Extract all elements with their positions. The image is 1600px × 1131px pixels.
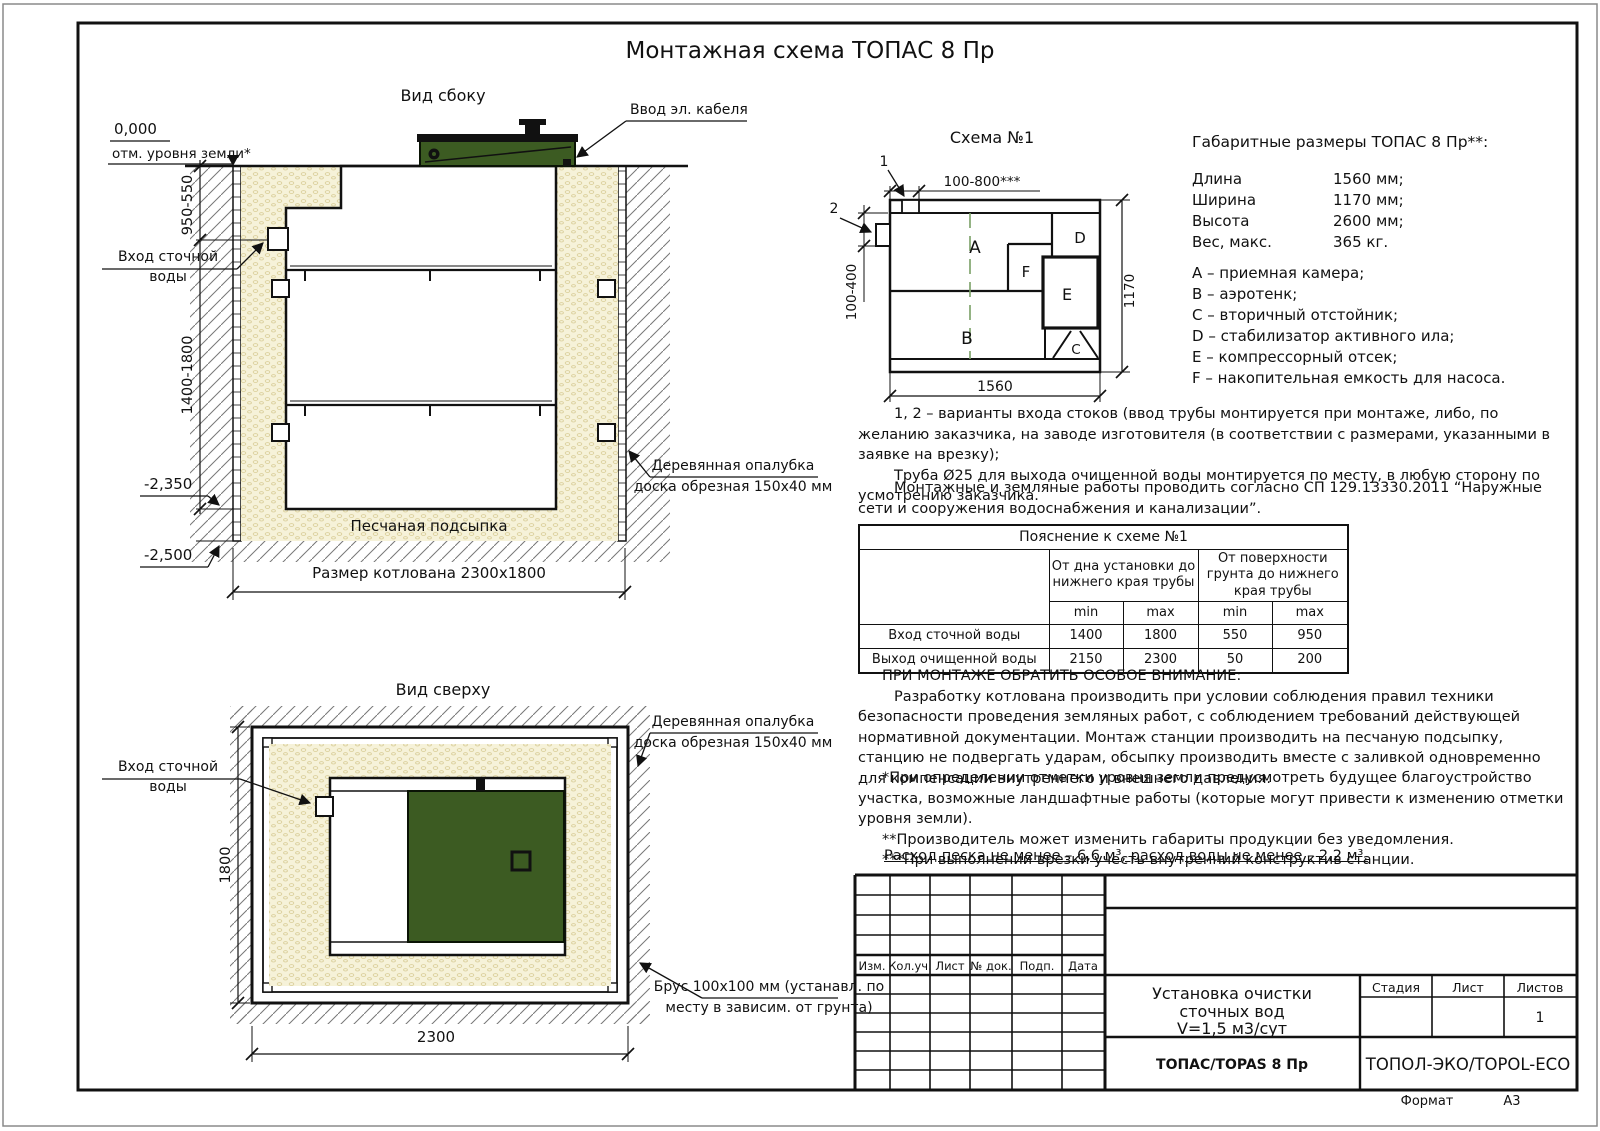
- title-block-text: Изм. Кол.уч. Лист № док. Подп. Дата Уста…: [858, 959, 1570, 1109]
- spec-value: 365 кг.: [1333, 233, 1388, 251]
- soil-hatch-left: [190, 166, 233, 562]
- explanation-table: Пояснение к схеме №1 От дна установки до…: [858, 524, 1349, 674]
- side-view-title: Вид сбоку: [400, 86, 485, 105]
- sheet-header: Лист: [1452, 980, 1484, 995]
- dim-1400-1800: 1400-1800: [180, 335, 196, 414]
- compartment-b-label: B: [961, 329, 973, 349]
- schema-title: Схема №1: [950, 128, 1034, 147]
- formwork-label-line1: Деревянная опалубка: [652, 714, 815, 730]
- drawing-sheet: Монтажная схема ТОПАС 8 Пр Вид сбоку: [0, 0, 1600, 1131]
- dim-1170: 1170: [1122, 274, 1138, 308]
- tank-body: [286, 166, 556, 509]
- wall-clip: [272, 280, 289, 297]
- dim-2300: 2300: [417, 1028, 455, 1046]
- formwork-label-line2: доска обрезная 150х40 мм: [634, 479, 833, 495]
- notes-sp: Монтажные и земляные работы проводить со…: [858, 478, 1552, 519]
- legend-item: F – накопительная емкость для насоса.: [1192, 369, 1505, 387]
- inlet-pipe-stub: [268, 228, 288, 250]
- dim-1560: 1560: [977, 379, 1013, 395]
- attention-title: ПРИ МОНТАЖЕ ОБРАТИТЬ ОСОБОЕ ВНИМАНИЕ:: [858, 666, 1558, 687]
- wall-clip: [598, 280, 615, 297]
- soil-hatch-bottom: [230, 1003, 650, 1024]
- specs-title: Габаритные размеры ТОПАС 8 Пр**:: [1192, 133, 1488, 151]
- legend-item: A – приемная камера;: [1192, 264, 1364, 282]
- cable-entry-label: Ввод эл. кабеля: [630, 102, 748, 118]
- compartment-e-label: E: [1062, 285, 1072, 304]
- consumption-note: Расход песка не менее – 6,6 м³, расход в…: [884, 845, 1368, 864]
- footnote-1: *При определении отметки уровня земли пр…: [858, 768, 1564, 830]
- table-group-header: От дна установки до нижнего края трубы: [1049, 550, 1198, 602]
- format-label: Формат: [1401, 1094, 1454, 1109]
- row-label: Вход сточной воды: [859, 624, 1049, 648]
- table-title: Пояснение к схеме №1: [859, 525, 1348, 550]
- spec-value: 1170 мм;: [1333, 191, 1404, 209]
- table-row: Вход сточной воды 1400 1800 550 950: [859, 624, 1348, 648]
- cell-value: 1400: [1049, 624, 1123, 648]
- table-corner-cell: [859, 550, 1049, 625]
- side-view: Вид сбоку: [102, 86, 832, 600]
- lid-hinge-top: [476, 779, 485, 791]
- doc-title-line1: Установка очистки: [1152, 984, 1312, 1003]
- table-group-header: От поверхности грунта до нижнего края тр…: [1198, 550, 1348, 602]
- dim-100-400: 100-400: [844, 264, 860, 320]
- rev-header: Лист: [935, 959, 964, 973]
- inlet-label-line1: Вход сточной: [118, 249, 218, 265]
- legend-item: B – аэротенк;: [1192, 285, 1297, 303]
- beam-label-line2: месту в зависим. от грунта): [665, 1000, 872, 1016]
- dim-1800: 1800: [218, 847, 234, 884]
- inlet-pipe-stub: [316, 797, 333, 816]
- wall-clip: [272, 424, 289, 441]
- dim-100-800: 100-800***: [944, 174, 1021, 190]
- table-min-header: min: [1198, 601, 1272, 624]
- inlet-label-line2: воды: [149, 269, 187, 285]
- legend-item: D – стабилизатор активного ила;: [1192, 327, 1454, 345]
- marker-1: 1: [880, 154, 889, 170]
- wall-clip: [598, 424, 615, 441]
- spec-label: Вес, макс.: [1192, 233, 1272, 251]
- inlet-label-line1: Вход сточной: [118, 759, 218, 775]
- sand-right: [556, 166, 618, 509]
- level-2350-label: -2,350: [144, 475, 192, 493]
- soil-hatch-right: [628, 706, 650, 1024]
- pit-size-label: Размер котлована 2300х1800: [312, 564, 546, 582]
- compartment-d-label: D: [1074, 229, 1086, 247]
- spec-value: 1560 мм;: [1333, 170, 1404, 188]
- explanation-table-wrap: Пояснение к схеме №1 От дна установки до…: [858, 524, 1349, 674]
- notes-variants-line: 1, 2 – варианты входа стоков (ввод трубы…: [858, 404, 1552, 466]
- soil-hatch-top: [230, 706, 650, 727]
- level-2500-label: -2,500: [144, 546, 192, 564]
- compartment-c-label: C: [1071, 342, 1080, 358]
- company-label: ТОПОЛ-ЭКО/TOPOL-ECO: [1365, 1055, 1570, 1074]
- tank-lid-top: [408, 791, 564, 942]
- schema-1: Схема №1 1 2 100-800*** 100-400 A B: [830, 128, 1138, 402]
- tank-lid: [417, 119, 578, 166]
- spec-label: Ширина: [1192, 191, 1256, 209]
- legend-item: C – вторичный отстойник;: [1192, 306, 1398, 324]
- legend-item: E – компрессорный отсек;: [1192, 348, 1398, 366]
- table-min-header: min: [1049, 601, 1123, 624]
- marker-2: 2: [830, 201, 839, 217]
- formwork-right: [618, 166, 626, 541]
- spec-label: Высота: [1192, 212, 1250, 230]
- vent-square: [512, 852, 530, 870]
- cell-value: 1800: [1123, 624, 1198, 648]
- spec-label: Длина: [1192, 170, 1242, 188]
- doc-title-line3: V=1,5 м3/сут: [1177, 1019, 1287, 1038]
- compartment-f-label: F: [1022, 263, 1031, 281]
- cable-entry-point: [563, 159, 571, 166]
- rev-header: Подп.: [1020, 959, 1055, 973]
- cell-value: 550: [1198, 624, 1272, 648]
- rev-header: Дата: [1068, 959, 1098, 973]
- inlet-label-line2: воды: [149, 779, 187, 795]
- rev-header: Кол.уч.: [888, 959, 931, 973]
- dim-950-550: 950-550: [180, 175, 196, 236]
- sand-layer-label: Песчаная подсыпка: [350, 517, 507, 535]
- formwork-left: [233, 166, 241, 541]
- notes-sp-line: Монтажные и земляные работы проводить со…: [858, 478, 1552, 519]
- model-label: ТОПАС/TOPAS 8 Пр: [1156, 1057, 1308, 1073]
- format-value: А3: [1503, 1094, 1520, 1109]
- stage-header: Стадия: [1372, 980, 1420, 995]
- table-max-header: max: [1123, 601, 1198, 624]
- cell-value: 950: [1272, 624, 1348, 648]
- formwork-label-line2: доска обрезная 150х40 мм: [634, 735, 833, 751]
- drawing-svg: Монтажная схема ТОПАС 8 Пр Вид сбоку: [0, 0, 1600, 1131]
- specs-block: Габаритные размеры ТОПАС 8 Пр**: Длина 1…: [1192, 133, 1505, 387]
- consumption-text: Расход песка не менее – 6,6 м³, расход в…: [884, 848, 1368, 864]
- soil-hatch-bottom: [233, 541, 626, 562]
- compartment-a-label: A: [969, 238, 981, 258]
- page-title: Монтажная схема ТОПАС 8 Пр: [626, 38, 995, 64]
- zero-level-label: 0,000: [114, 120, 157, 138]
- formwork-label-line1: Деревянная опалубка: [652, 458, 815, 474]
- soil-hatch-right: [626, 166, 670, 562]
- rev-header: Изм.: [858, 959, 885, 973]
- sheets-header: Листов: [1517, 980, 1564, 995]
- inlet-variant-2: [876, 224, 890, 246]
- spec-value: 2600 мм;: [1333, 212, 1404, 230]
- rev-header: № док.: [970, 959, 1011, 973]
- table-max-header: max: [1272, 601, 1348, 624]
- beam-label-line1: Брус 100х100 мм (устанавл. по: [654, 979, 884, 995]
- top-view-title: Вид сверху: [396, 680, 491, 699]
- top-view: Вид сверху Вход сточной воды Деревянная …: [102, 680, 884, 1062]
- vent-cap: [525, 124, 540, 134]
- sheets-value: 1: [1536, 1010, 1545, 1026]
- inlet-variant-1: [902, 200, 919, 213]
